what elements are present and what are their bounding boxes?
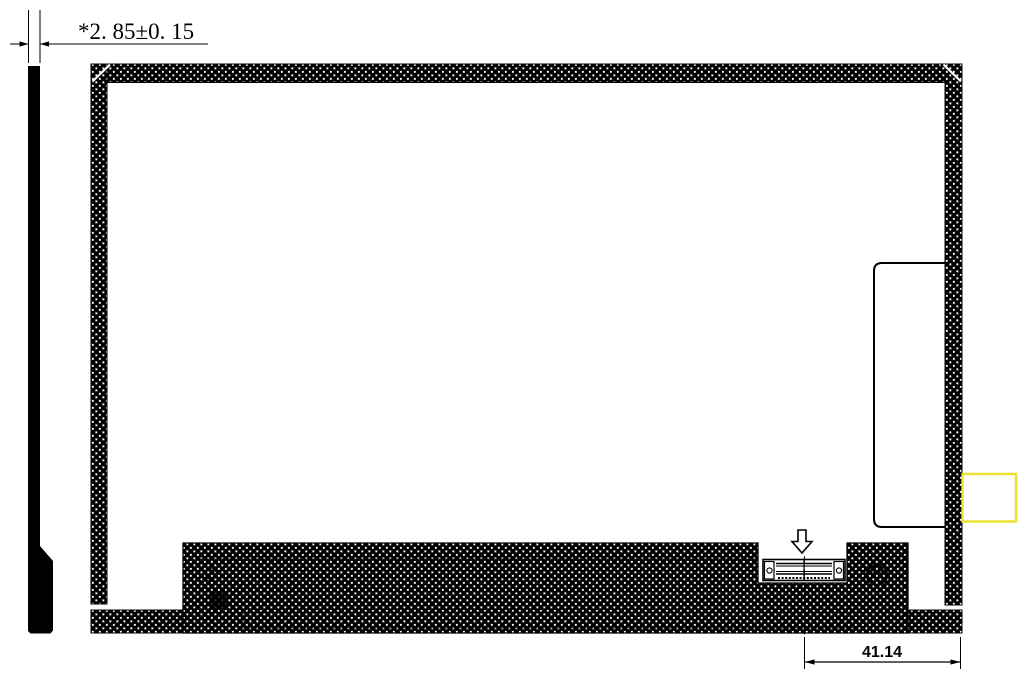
side-view-profile [28, 66, 53, 634]
bezel-left-hatch [91, 64, 107, 604]
pcb-hatch-block [183, 543, 908, 633]
outline-drawing-canvas: *2. 85±0. 15 [0, 0, 1022, 680]
arrowhead-left-icon [40, 41, 49, 46]
down-arrow-icon [792, 530, 812, 553]
connector-offset-label: 41.14 [862, 644, 902, 661]
arrowhead-right-icon [20, 41, 29, 46]
bezel-right-hatch [945, 64, 962, 605]
thickness-dimension: *2. 85±0. 15 [10, 10, 208, 63]
side-view [28, 66, 53, 634]
pcb-component-dark [210, 591, 227, 609]
thickness-dimension-label: *2. 85±0. 15 [78, 19, 194, 44]
front-view [91, 64, 1016, 637]
arrowhead-right-icon [951, 659, 961, 664]
highlight-box [963, 474, 1017, 522]
mechanical-drawing: *2. 85±0. 15 [0, 0, 1022, 680]
bezel-top-hatch [91, 64, 962, 83]
label-plate [874, 263, 951, 527]
arrowhead-left-icon [805, 659, 815, 664]
connector-offset-dimension: 41.14 [805, 637, 961, 669]
